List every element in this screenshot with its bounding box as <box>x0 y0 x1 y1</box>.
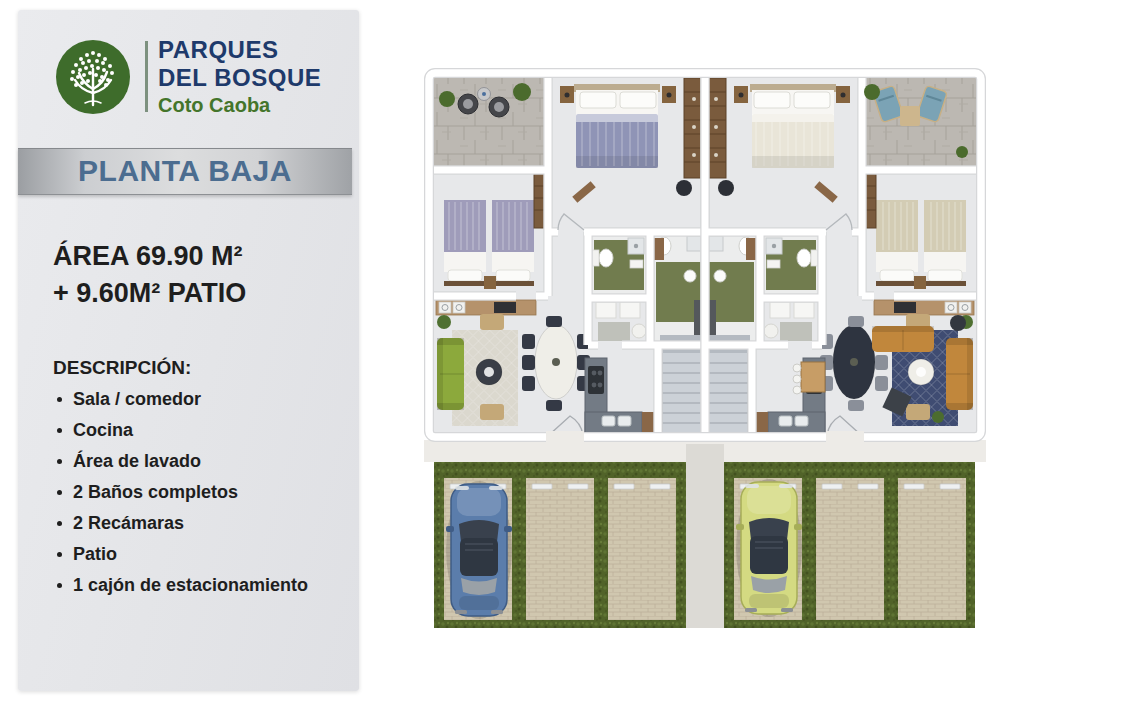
bullet-icon <box>57 552 62 557</box>
bullet-icon <box>57 459 62 464</box>
area-line2: + 9.60M² PATIO <box>53 275 246 312</box>
building <box>429 73 981 442</box>
brand-line1: PARQUES <box>158 36 321 64</box>
area-line1: ÁREA 69.90 M² <box>53 238 246 275</box>
feature-label: Cocina <box>73 421 133 440</box>
feature-label: 2 Baños completos <box>73 483 238 502</box>
feature-label: Área de lavado <box>73 452 201 471</box>
flyer-page: PARQUES DEL BOSQUE Coto Caoba PLANTA BAJ… <box>0 0 1122 709</box>
feature-item: Patio <box>53 545 308 564</box>
feature-label: 2 Recámaras <box>73 514 184 533</box>
feature-item: Cocina <box>53 421 308 440</box>
floor-banner-title: PLANTA BAJA <box>18 149 352 192</box>
brand-subtitle: Coto Caoba <box>158 92 321 118</box>
feature-label: Patio <box>73 545 117 564</box>
description-heading: DESCRIPCIÓN: <box>53 357 191 379</box>
feature-item: 2 Baños completos <box>53 483 308 502</box>
feature-list: Sala / comedor Cocina Área de lavado 2 B… <box>53 390 308 607</box>
car-blue <box>446 481 512 619</box>
walkway <box>686 444 724 628</box>
bullet-icon <box>57 521 62 526</box>
floor-banner: PLANTA BAJA <box>18 148 352 195</box>
brand-line2: DEL BOSQUE <box>158 64 321 92</box>
feature-label: 1 cajón de estacionamiento <box>73 576 308 595</box>
brand-text: PARQUES DEL BOSQUE Coto Caoba <box>158 36 321 118</box>
bullet-icon <box>57 490 62 495</box>
tree-icon <box>55 39 131 115</box>
feature-item: 2 Recámaras <box>53 514 308 533</box>
area-info: ÁREA 69.90 M² + 9.60M² PATIO <box>53 238 246 312</box>
bullet-icon <box>57 397 62 402</box>
feature-item: 1 cajón de estacionamiento <box>53 576 308 595</box>
feature-item: Sala / comedor <box>53 390 308 409</box>
car-green <box>736 479 802 617</box>
feature-item: Área de lavado <box>53 452 308 471</box>
feature-label: Sala / comedor <box>73 390 201 409</box>
bullet-icon <box>57 428 62 433</box>
bullet-icon <box>57 583 62 588</box>
info-card: PARQUES DEL BOSQUE Coto Caoba PLANTA BAJ… <box>18 10 359 691</box>
logo-divider <box>145 41 148 112</box>
